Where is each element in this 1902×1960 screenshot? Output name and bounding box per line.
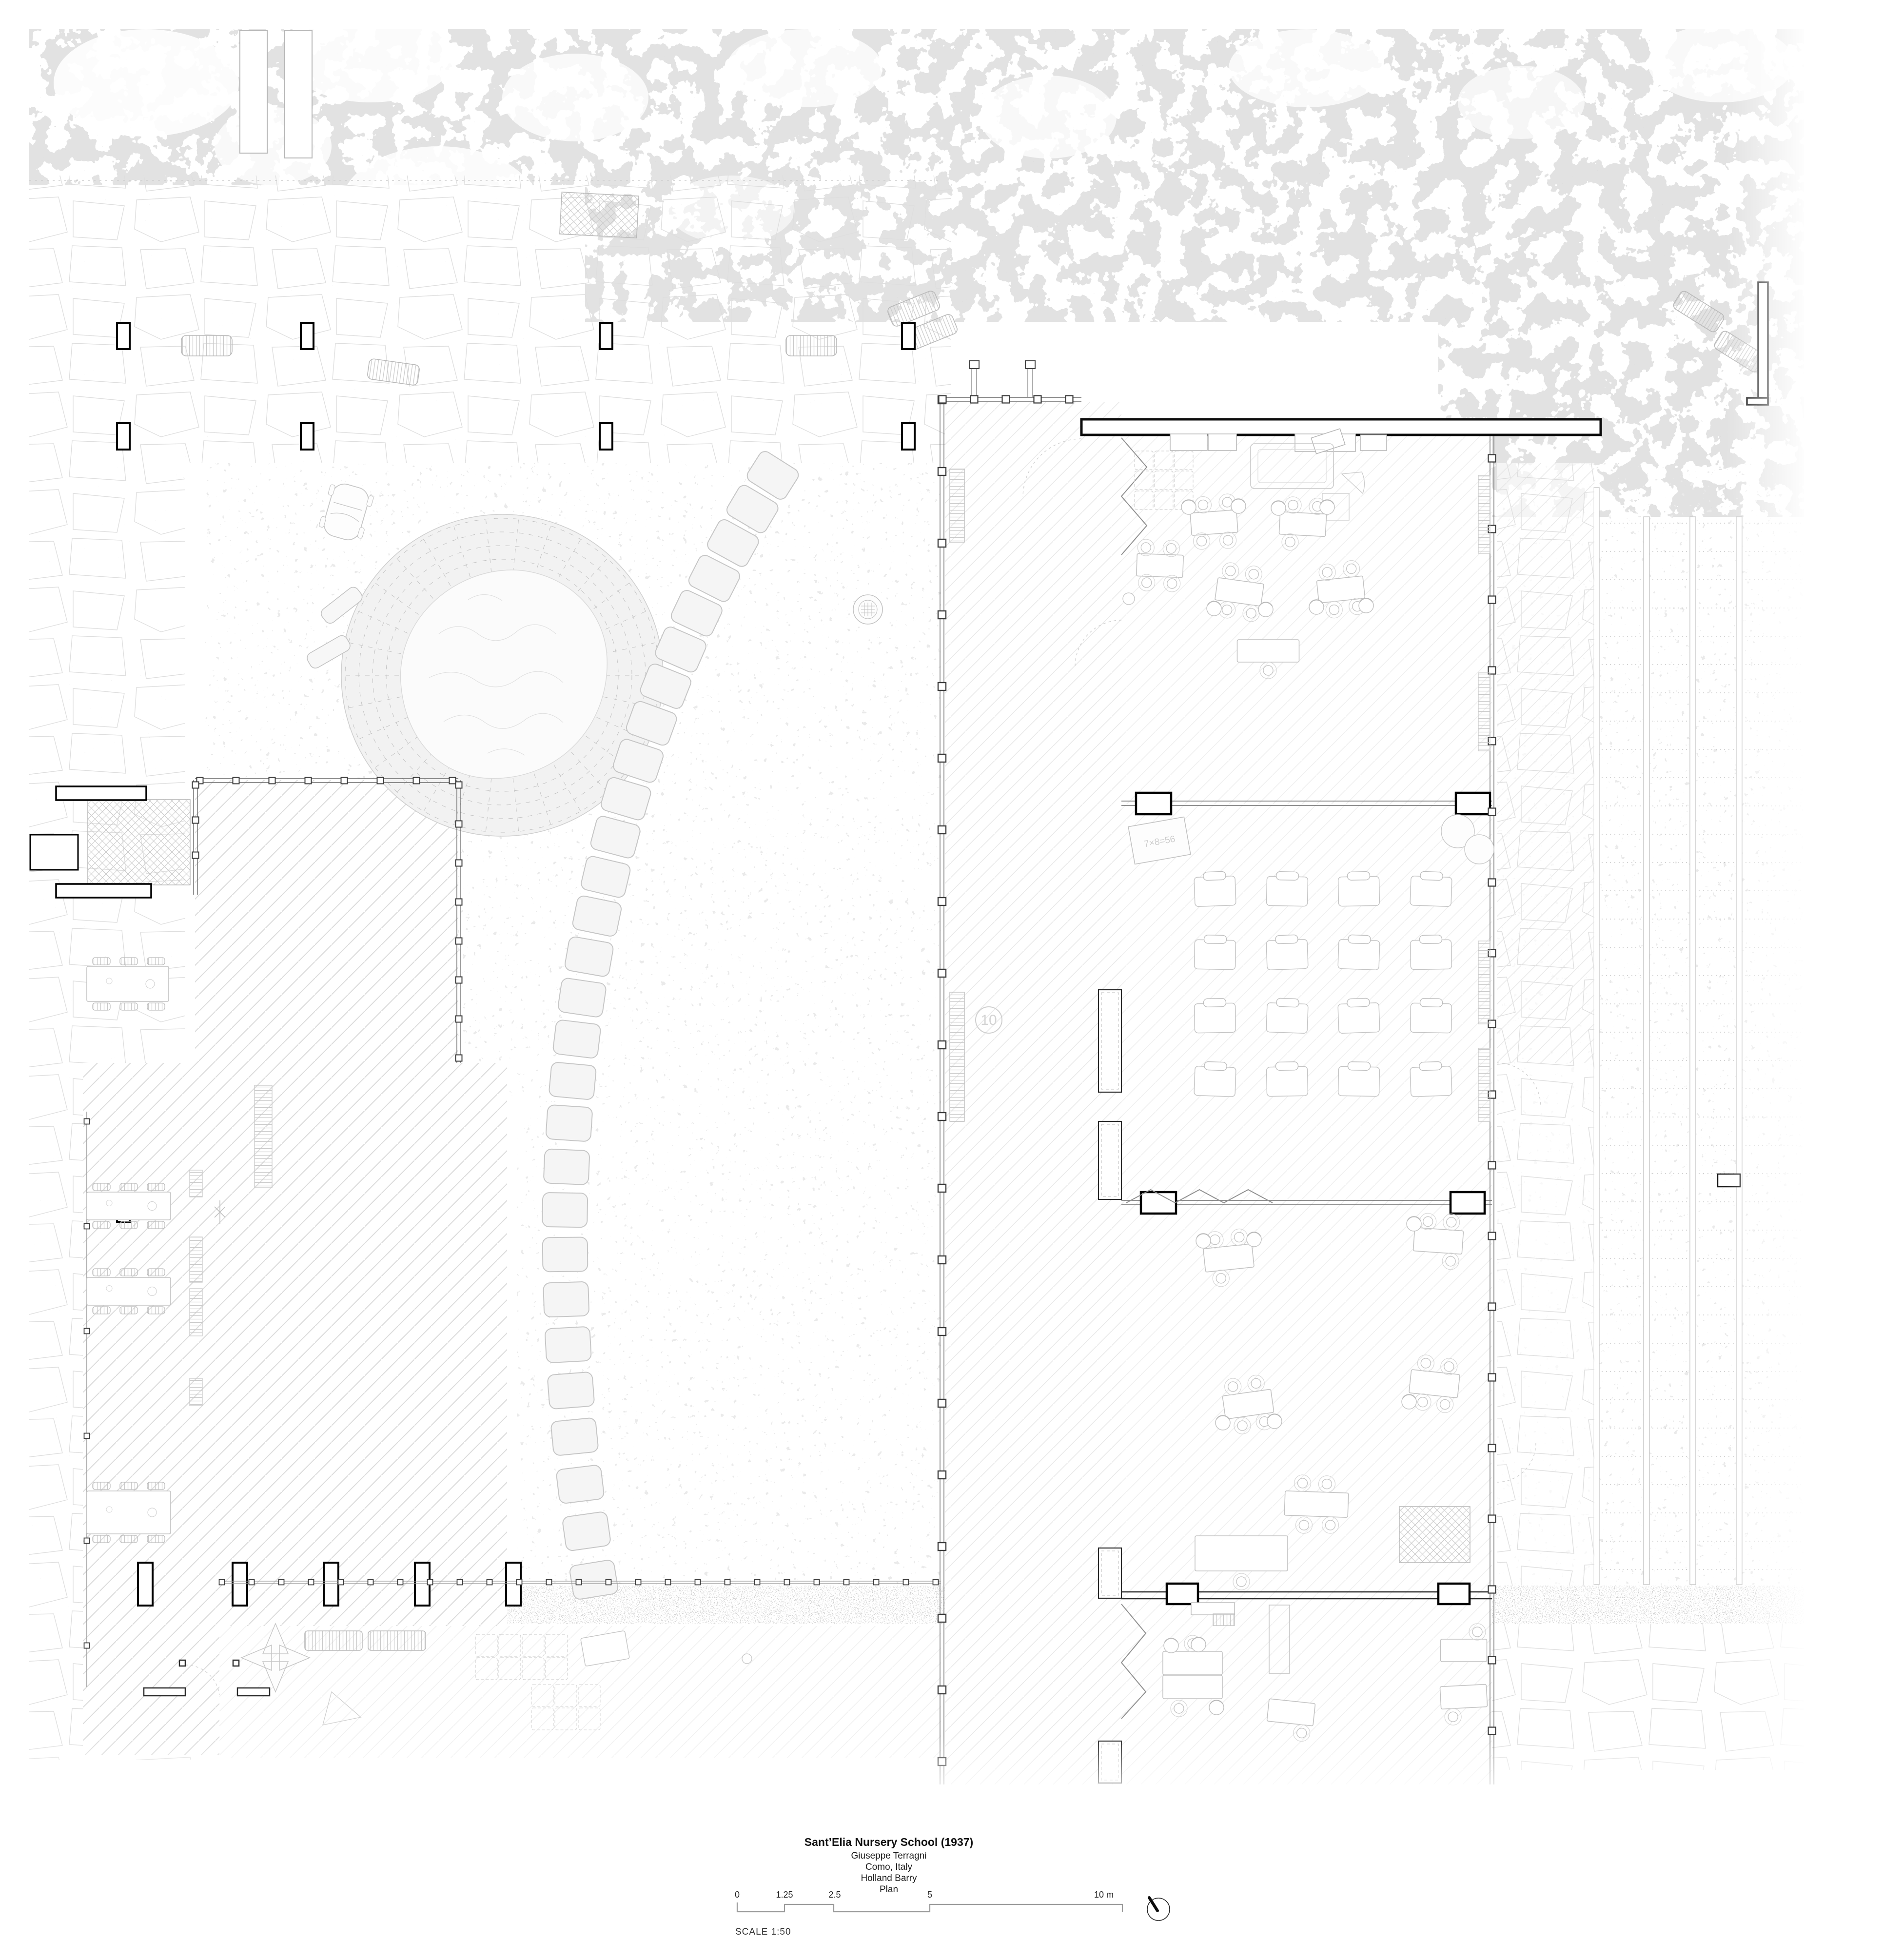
column — [413, 778, 420, 784]
nap-cot — [1266, 871, 1308, 906]
project-title: Sant’Elia Nursery School (1937) — [804, 1836, 973, 1848]
crosshatch-rug — [1399, 1507, 1470, 1563]
column — [814, 1580, 820, 1585]
radiator — [1478, 1048, 1490, 1121]
column — [305, 778, 312, 784]
scale-label-3: 5 — [927, 1890, 932, 1900]
column — [398, 1580, 403, 1585]
pergola-posts — [969, 361, 1035, 397]
column — [84, 1329, 90, 1334]
column — [938, 969, 946, 977]
column — [456, 821, 462, 827]
column — [1489, 1657, 1496, 1664]
dining-chair — [93, 1307, 110, 1314]
chair — [1402, 1394, 1416, 1409]
drawing-type: Plan — [880, 1884, 898, 1895]
column — [249, 1580, 255, 1585]
storage-box-left — [30, 835, 78, 870]
dining-chair — [147, 1269, 165, 1276]
dining-table — [87, 1491, 171, 1534]
column — [279, 1580, 284, 1585]
column — [938, 1113, 946, 1120]
slatted-bench — [181, 335, 232, 356]
column — [933, 1580, 939, 1585]
column — [939, 396, 946, 403]
scale-label-1: 1.25 — [776, 1890, 793, 1900]
dining-chair — [147, 1535, 165, 1543]
canopy-column — [117, 323, 130, 349]
column — [938, 1184, 946, 1192]
column — [338, 1580, 344, 1585]
dining-chair — [120, 1269, 137, 1276]
canopy-column — [902, 423, 915, 450]
path-stone — [564, 936, 614, 978]
column — [844, 1580, 849, 1585]
play-bench — [305, 1631, 362, 1650]
column — [938, 898, 946, 905]
column — [517, 1580, 522, 1585]
dining-chair — [120, 1221, 137, 1229]
casework — [1208, 434, 1236, 451]
chair — [1247, 1232, 1261, 1247]
path-stone — [543, 1237, 588, 1272]
canopy-column — [600, 423, 612, 450]
drain-grate — [853, 595, 882, 624]
column — [547, 1580, 552, 1585]
scale-label-4: 10 m — [1094, 1890, 1114, 1900]
chair — [1267, 1414, 1282, 1429]
column — [938, 826, 946, 834]
path-stone — [545, 1327, 591, 1363]
book-cart — [1213, 1614, 1235, 1626]
chair — [1309, 600, 1324, 614]
project-location: Como, Italy — [865, 1862, 913, 1872]
corridor-cabinet — [1098, 990, 1121, 1092]
terrace-radiator — [190, 1289, 202, 1336]
chair — [1271, 501, 1286, 515]
scale-note: SCALE 1:50 — [735, 1927, 791, 1937]
play-ladder — [255, 1085, 272, 1188]
canopy-column — [117, 423, 130, 450]
column — [971, 396, 978, 403]
dining-chair — [120, 1307, 137, 1314]
radiator — [1478, 941, 1490, 1024]
column — [938, 1328, 946, 1335]
chair — [1209, 1700, 1224, 1715]
column — [636, 1580, 641, 1585]
dining-table — [87, 1192, 171, 1220]
column — [456, 938, 462, 944]
radiator — [1478, 673, 1490, 751]
chair — [1258, 602, 1273, 617]
dining-chair — [147, 1482, 165, 1490]
terrace-radiator — [190, 1378, 202, 1406]
dining-chair — [120, 1535, 137, 1543]
column — [938, 611, 946, 619]
casework — [1170, 434, 1207, 451]
column — [341, 778, 348, 784]
column — [456, 782, 462, 788]
column — [84, 1538, 90, 1544]
nap-cot — [1338, 1061, 1379, 1096]
column — [1489, 879, 1496, 886]
play-bench — [368, 1631, 426, 1650]
dining-chair — [147, 1183, 165, 1191]
column — [1066, 396, 1073, 403]
column — [84, 1119, 90, 1124]
column — [1489, 808, 1496, 816]
column — [1489, 1303, 1496, 1311]
path-stone — [556, 1465, 605, 1504]
path-stone — [562, 1511, 611, 1551]
chair — [1231, 499, 1246, 513]
path-stone — [543, 1282, 589, 1317]
flagstone-walk-top — [29, 176, 951, 463]
column — [456, 1016, 462, 1022]
dining-chair — [147, 1003, 165, 1010]
corridor-bench — [950, 469, 964, 542]
column — [309, 1580, 314, 1585]
architectural-plan-sheet: 10 7×8=56 Sant’Elia Nursery School (1937… — [0, 0, 1902, 1960]
path-stone — [557, 978, 607, 1018]
column — [755, 1580, 760, 1585]
column — [606, 1580, 611, 1585]
column — [784, 1580, 790, 1585]
dining-chair — [120, 1183, 137, 1191]
dining-chair — [93, 1003, 110, 1010]
column — [725, 1580, 730, 1585]
hopscotch-circle-number: 10 — [980, 1012, 997, 1028]
chair — [1181, 500, 1196, 514]
column — [219, 1580, 225, 1585]
nap-cot — [1266, 1061, 1308, 1096]
dining-table — [87, 966, 169, 1001]
column — [487, 1580, 492, 1585]
column — [938, 1256, 946, 1264]
nap-cot — [1338, 871, 1379, 906]
path-stone — [552, 1019, 601, 1059]
scale-label-2: 2.5 — [828, 1890, 841, 1900]
canopy-column — [324, 1563, 338, 1606]
column — [1489, 1586, 1496, 1593]
corridor-cabinet — [1098, 1121, 1121, 1199]
canopy-column — [600, 323, 612, 349]
dining-chair — [93, 1183, 110, 1191]
column — [903, 1580, 909, 1585]
chair — [1320, 500, 1334, 514]
dining-chair — [147, 1221, 165, 1229]
canopy-column — [138, 1563, 153, 1606]
column — [1489, 1374, 1496, 1381]
chair — [1207, 601, 1221, 616]
column — [1489, 596, 1496, 604]
desk — [1191, 1603, 1235, 1615]
scale-label-0: 0 — [735, 1890, 740, 1900]
column — [576, 1580, 582, 1585]
chair — [1216, 1415, 1230, 1430]
column — [1489, 1162, 1496, 1169]
column — [193, 782, 199, 788]
column — [938, 1041, 946, 1049]
column — [938, 683, 946, 690]
dining-table — [87, 1277, 171, 1305]
column — [456, 860, 462, 866]
casework — [1360, 435, 1387, 451]
path-stone — [549, 1062, 596, 1100]
column — [84, 1643, 90, 1648]
column — [666, 1580, 671, 1585]
column — [938, 1543, 946, 1550]
canopy-column — [233, 1563, 247, 1606]
column — [1489, 1515, 1496, 1523]
column — [1034, 396, 1041, 403]
dining-chair — [120, 1003, 137, 1010]
dining-chair — [93, 1221, 110, 1229]
column — [1489, 1233, 1496, 1240]
column — [193, 852, 199, 859]
radiator — [1478, 475, 1490, 553]
column — [233, 778, 239, 784]
dining-chair — [93, 1482, 110, 1490]
column — [193, 817, 199, 823]
canopy-column — [301, 423, 314, 450]
trellis-canopy — [88, 800, 190, 885]
terrace-radiator — [190, 1237, 202, 1282]
column — [84, 1224, 90, 1229]
nap-cot — [1410, 935, 1451, 969]
dining-chair — [147, 958, 165, 965]
column — [938, 1399, 946, 1407]
flagstone-walk-east — [1497, 463, 1594, 1586]
canopy-column — [902, 323, 915, 349]
column — [1489, 1445, 1496, 1452]
gate-mat — [560, 192, 639, 238]
column — [457, 1580, 463, 1585]
column — [456, 899, 462, 905]
column — [368, 1580, 373, 1585]
chair — [1359, 598, 1373, 613]
central-corridor-floor — [945, 402, 1121, 1784]
nap-cot — [1194, 998, 1235, 1033]
path-stone — [550, 1417, 598, 1456]
column — [938, 539, 946, 547]
column — [1489, 455, 1496, 462]
corridor-bench — [950, 992, 964, 1121]
canopy-column — [301, 323, 314, 349]
column — [938, 1614, 946, 1622]
corridor-cabinet — [1098, 1548, 1121, 1598]
column — [938, 754, 946, 762]
column — [84, 1433, 90, 1439]
path-stone — [542, 1193, 588, 1227]
column — [874, 1580, 879, 1585]
dining-chair — [93, 1269, 110, 1276]
chair — [1407, 1216, 1421, 1231]
dining-chair — [93, 1535, 110, 1543]
column — [269, 778, 275, 784]
drawing-author: Holland Barry — [861, 1873, 917, 1883]
slatted-bench — [786, 335, 837, 356]
architect-name: Giuseppe Terragni — [851, 1851, 927, 1861]
path-stone — [547, 1372, 594, 1410]
dining-chair — [120, 958, 137, 965]
column — [1489, 1727, 1496, 1735]
toy-globe — [1123, 593, 1135, 605]
nap-cot — [1410, 998, 1451, 1033]
column — [428, 1580, 433, 1585]
column — [695, 1580, 701, 1585]
column — [450, 778, 456, 784]
column — [938, 1686, 946, 1694]
terrace-radiator — [190, 1170, 202, 1197]
dining-chair — [93, 958, 110, 965]
dining-chair — [147, 1307, 165, 1314]
column — [938, 468, 946, 475]
path-stone — [546, 1105, 592, 1142]
nap-cot — [1194, 935, 1235, 969]
column — [1002, 396, 1010, 403]
chair — [1164, 1638, 1178, 1653]
classroom-floors — [1121, 436, 1492, 1784]
dining-chair — [120, 1482, 137, 1490]
column — [456, 977, 462, 983]
path-stone — [544, 1149, 590, 1185]
column — [456, 1055, 462, 1061]
beanbag — [1465, 835, 1494, 864]
chair — [1191, 1637, 1206, 1652]
column — [938, 1471, 946, 1479]
chair — [1196, 1234, 1211, 1248]
column — [377, 778, 384, 784]
